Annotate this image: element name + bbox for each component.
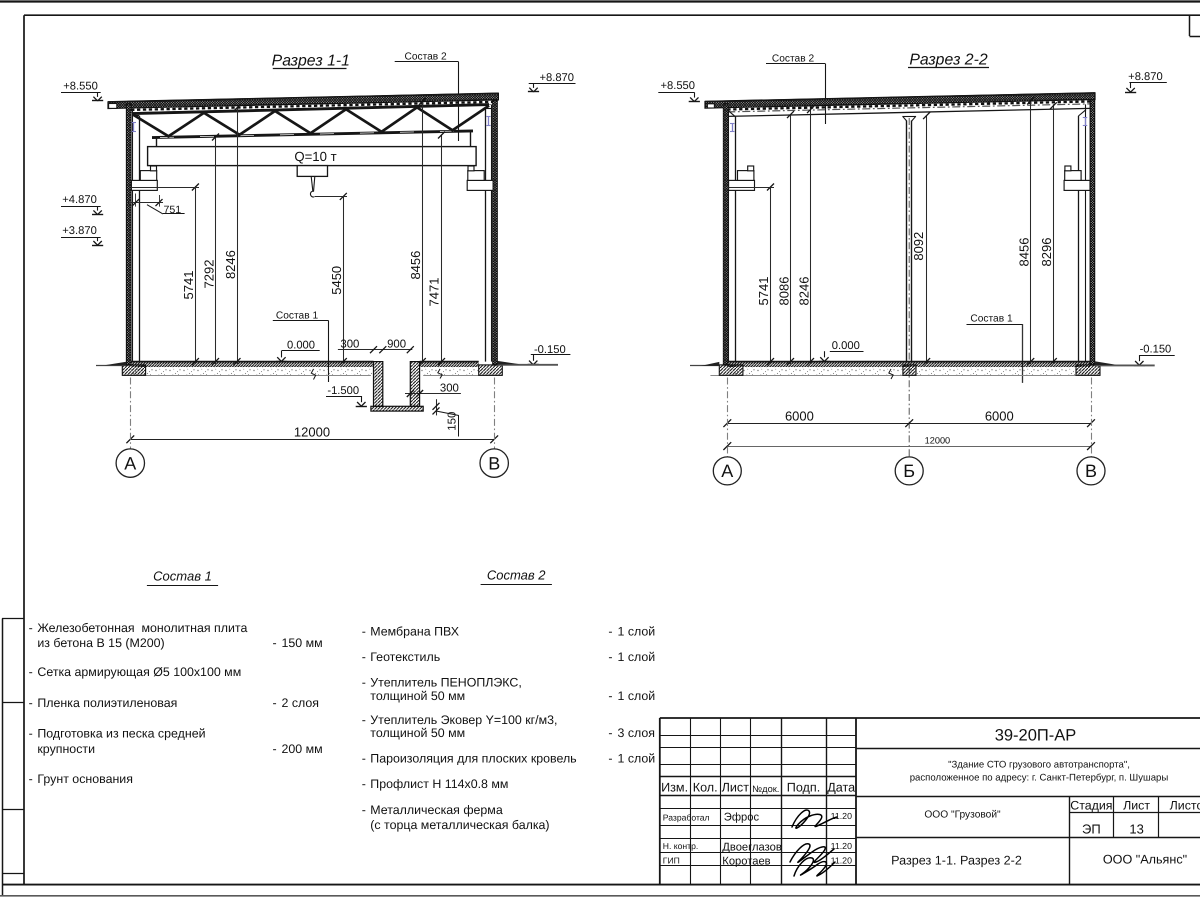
svg-text:7292: 7292 xyxy=(201,260,216,289)
svg-text:Разработал: Разработал xyxy=(663,812,710,822)
svg-text:Сетка армирующая Ø5 100x100 мм: Сетка армирующая Ø5 100x100 мм xyxy=(37,665,241,679)
svg-text:-: - xyxy=(608,650,612,664)
svg-text:200 мм: 200 мм xyxy=(282,742,323,756)
svg-text:+8.550: +8.550 xyxy=(660,80,695,92)
svg-text:-: - xyxy=(362,777,366,791)
svg-text:-1.500: -1.500 xyxy=(327,385,359,397)
svg-text:Утеплитель ПЕНОПЛЭКС,: Утеплитель ПЕНОПЛЭКС, xyxy=(370,675,521,689)
svg-text:Подп.: Подп. xyxy=(787,780,820,794)
svg-text:+8.870: +8.870 xyxy=(539,72,574,84)
svg-text:Геотекстиль: Геотекстиль xyxy=(370,650,440,664)
svg-text:300: 300 xyxy=(440,383,459,395)
svg-text:Утеплитель Эковер Y=100 кг/м3,: Утеплитель Эковер Y=100 кг/м3, xyxy=(370,713,557,727)
svg-text:-: - xyxy=(362,625,366,639)
svg-text:Разрез 1-1. Разрез 2-2: Разрез 1-1. Разрез 2-2 xyxy=(891,854,1022,868)
svg-text:Лист: Лист xyxy=(722,780,750,794)
svg-text:-: - xyxy=(362,675,366,689)
svg-text:+8.870: +8.870 xyxy=(1128,71,1163,83)
svg-text:-: - xyxy=(29,621,33,635)
svg-text:Профлист Н 114х0.8 мм: Профлист Н 114х0.8 мм xyxy=(370,777,508,791)
svg-text:Эфрос: Эфрос xyxy=(724,811,760,823)
svg-text:12000: 12000 xyxy=(925,436,951,446)
svg-text:Двоеглазов: Двоеглазов xyxy=(722,841,782,853)
svg-text:-: - xyxy=(273,742,277,756)
svg-text:ЭП: ЭП xyxy=(1082,822,1101,837)
svg-text:751: 751 xyxy=(164,204,182,216)
svg-text:-: - xyxy=(362,713,366,727)
svg-text:-: - xyxy=(29,665,33,679)
svg-text:-: - xyxy=(362,650,366,664)
svg-text:Разрез 2-2: Разрез 2-2 xyxy=(909,52,987,69)
svg-text:8456: 8456 xyxy=(1016,238,1031,267)
svg-text:150: 150 xyxy=(447,412,459,431)
svg-text:5450: 5450 xyxy=(329,266,344,295)
svg-text:-: - xyxy=(362,751,366,765)
svg-text:300: 300 xyxy=(340,339,359,351)
svg-text:Стадия: Стадия xyxy=(1070,798,1112,812)
svg-text:толщиной 50 мм: толщиной 50 мм xyxy=(370,689,465,703)
svg-text:1 слой: 1 слой xyxy=(618,689,656,703)
svg-text:8086: 8086 xyxy=(777,277,792,306)
svg-text:Б: Б xyxy=(903,461,915,481)
svg-text:расположенное по адресу: г. Са: расположенное по адресу: г. Санкт-Петерб… xyxy=(910,773,1169,784)
svg-text:8296: 8296 xyxy=(1039,238,1054,267)
svg-text:Железобетонная монолитная пли: Железобетонная монолитная плита xyxy=(37,621,247,635)
svg-text:Пароизоляция для плоских крове: Пароизоляция для плоских кровель xyxy=(370,751,576,765)
svg-text:8246: 8246 xyxy=(223,250,238,279)
svg-text:5741: 5741 xyxy=(756,277,771,306)
svg-text:+3.870: +3.870 xyxy=(62,225,97,237)
svg-text:7471: 7471 xyxy=(426,278,441,307)
svg-text:Н. контр.: Н. контр. xyxy=(663,841,698,851)
svg-text:-: - xyxy=(608,689,612,703)
svg-text:150 мм: 150 мм xyxy=(282,636,323,650)
svg-text:(с торца металлическая балка): (с торца металлическая балка) xyxy=(370,818,549,832)
svg-text:11.20: 11.20 xyxy=(831,811,852,821)
svg-text:Состав 2: Состав 2 xyxy=(487,568,546,583)
svg-text:5741: 5741 xyxy=(181,271,196,300)
svg-text:-: - xyxy=(608,751,612,765)
svg-text:Подготовка из песка средней: Подготовка из песка средней xyxy=(37,727,205,741)
svg-text:№док.: №док. xyxy=(752,784,779,794)
svg-text:Лист: Лист xyxy=(1123,798,1150,812)
svg-text:-: - xyxy=(273,696,277,710)
svg-text:-: - xyxy=(608,726,612,740)
svg-text:-: - xyxy=(273,636,277,650)
svg-text:Пленка полиэтиленовая: Пленка полиэтиленовая xyxy=(37,696,177,710)
svg-text:+4.870: +4.870 xyxy=(62,194,97,206)
svg-text:6000: 6000 xyxy=(785,408,814,423)
svg-text:Кол.: Кол. xyxy=(693,780,718,794)
svg-text:900: 900 xyxy=(387,339,406,351)
svg-text:12000: 12000 xyxy=(294,425,330,440)
svg-text:Коротаев: Коротаев xyxy=(722,855,770,867)
svg-text:ГИП: ГИП xyxy=(663,855,680,865)
svg-text:Металлическая ферма: Металлическая ферма xyxy=(370,803,503,817)
svg-text:Разрез 1-1: Разрез 1-1 xyxy=(272,52,350,69)
svg-text:Q=10 т: Q=10 т xyxy=(294,149,336,164)
svg-text:3 слоя: 3 слоя xyxy=(618,726,656,740)
svg-text:А: А xyxy=(124,453,136,473)
svg-text:8246: 8246 xyxy=(797,277,812,306)
svg-text:8456: 8456 xyxy=(408,251,423,280)
svg-text:Мембрана ПВХ: Мембрана ПВХ xyxy=(370,625,459,639)
svg-text:Состав 1: Состав 1 xyxy=(970,314,1013,325)
svg-text:Состав 2: Состав 2 xyxy=(772,53,815,64)
svg-text:ООО "Грузовой": ООО "Грузовой" xyxy=(924,810,1001,821)
svg-text:Дата: Дата xyxy=(827,780,855,794)
svg-text:-0.150: -0.150 xyxy=(1140,344,1172,356)
svg-text:А: А xyxy=(721,461,733,481)
svg-text:из бетона В 15 (М200): из бетона В 15 (М200) xyxy=(37,636,164,650)
svg-text:-: - xyxy=(29,772,33,786)
svg-text:Изм.: Изм. xyxy=(661,780,688,794)
svg-text:0.000: 0.000 xyxy=(832,340,860,352)
svg-text:8092: 8092 xyxy=(911,232,926,261)
svg-text:39-20П-АР: 39-20П-АР xyxy=(995,726,1077,744)
svg-text:Грунт основания: Грунт основания xyxy=(37,772,133,786)
svg-text:крупности: крупности xyxy=(37,742,95,756)
svg-text:6000: 6000 xyxy=(985,408,1014,423)
svg-text:Состав 1: Состав 1 xyxy=(153,569,212,584)
svg-text:-: - xyxy=(29,727,33,741)
svg-text:Состав 1: Состав 1 xyxy=(276,310,319,321)
svg-text:+8.550: +8.550 xyxy=(63,80,98,92)
svg-text:-: - xyxy=(362,803,366,817)
svg-text:1 слой: 1 слой xyxy=(618,751,656,765)
svg-text:1 слой: 1 слой xyxy=(618,650,656,664)
svg-text:толщиной 50 мм: толщиной 50 мм xyxy=(370,726,465,740)
svg-text:ООО "Альянс": ООО "Альянс" xyxy=(1103,852,1187,866)
svg-text:-: - xyxy=(29,696,33,710)
svg-text:Листов: Листов xyxy=(1170,798,1200,812)
svg-text:"Здание СТО грузового автотран: "Здание СТО грузового автотранспорта", xyxy=(948,760,1130,771)
svg-text:В: В xyxy=(1085,461,1097,481)
svg-text:13: 13 xyxy=(1129,822,1143,837)
svg-text:2 слоя: 2 слоя xyxy=(282,696,320,710)
svg-text:В: В xyxy=(488,453,500,473)
svg-text:1 слой: 1 слой xyxy=(618,625,656,639)
svg-text:-: - xyxy=(608,625,612,639)
svg-text:0.000: 0.000 xyxy=(287,340,315,352)
